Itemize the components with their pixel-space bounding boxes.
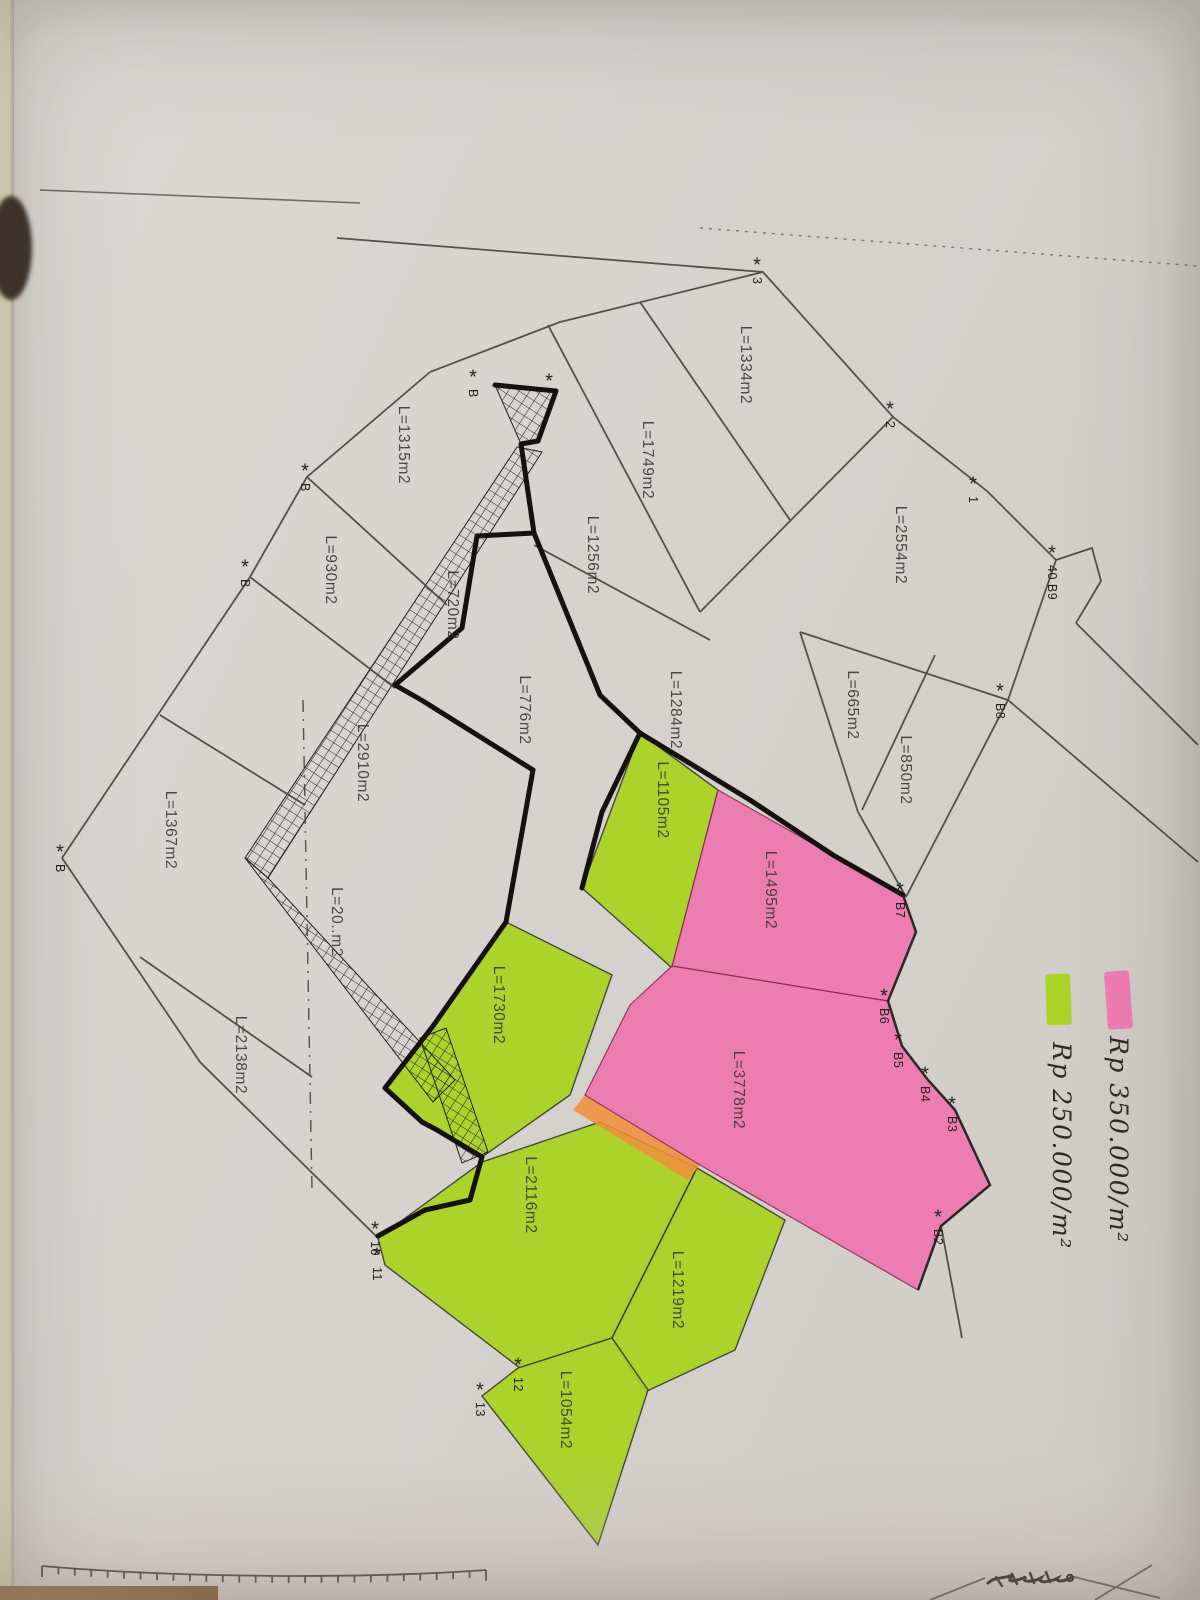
parcel-label: L=850m2 bbox=[896, 735, 914, 804]
parcel-label: L=1054m2 bbox=[556, 1371, 574, 1450]
legend-swatch-green bbox=[1045, 974, 1072, 1026]
survey-point-label: B5 bbox=[891, 1052, 905, 1068]
survey-point-label: B bbox=[53, 864, 67, 873]
parcel-label: L=930m2 bbox=[321, 535, 339, 604]
survey-point-label: B4 bbox=[918, 1086, 932, 1102]
survey-point-label: B3 bbox=[945, 1116, 959, 1132]
parcel-label: L=1749m2 bbox=[638, 421, 656, 500]
survey-star-icon: * bbox=[371, 1220, 379, 1240]
survey-star-icon: * bbox=[896, 881, 904, 901]
parcel-label: L=1105m2 bbox=[653, 761, 671, 838]
survey-point-label: 12 bbox=[511, 1377, 525, 1392]
survey-point-label: B6 bbox=[877, 1008, 891, 1024]
survey-star-icon: * bbox=[894, 1031, 902, 1051]
parcel-label: L=1334m2 bbox=[736, 326, 754, 405]
parcel-map-drawing bbox=[0, 0, 1200, 1600]
survey-star-icon: * bbox=[1048, 544, 1056, 564]
survey-point-label: B bbox=[466, 389, 480, 398]
survey-star-icon: * bbox=[241, 558, 249, 578]
survey-point-label: B bbox=[298, 483, 312, 492]
survey-star-icon: * bbox=[56, 843, 64, 863]
survey-star-icon: * bbox=[934, 1208, 942, 1228]
survey-point-label: B7 bbox=[893, 902, 907, 918]
legend-label-green: Rp 250.000/m² bbox=[1047, 1042, 1076, 1250]
parcel-label: L=720m2 bbox=[443, 570, 461, 639]
survey-star-icon: * bbox=[969, 475, 977, 495]
parcel-label: L=2554m2 bbox=[891, 506, 909, 585]
parcel-label: L=776m2 bbox=[515, 675, 533, 744]
survey-star-icon: * bbox=[373, 1246, 381, 1266]
survey-star-icon: * bbox=[301, 462, 309, 482]
parcel-label: L=1315m2 bbox=[394, 406, 412, 485]
parcel-label: L=1256m2 bbox=[583, 516, 601, 595]
survey-star-icon: * bbox=[514, 1356, 522, 1376]
survey-star-icon: * bbox=[545, 372, 553, 392]
survey-star-icon: * bbox=[996, 682, 1004, 702]
parcel-label: L=2116m2 bbox=[521, 1156, 539, 1233]
parcel-label: L=2910m2 bbox=[353, 724, 371, 803]
illegible-scribble bbox=[988, 1572, 1073, 1586]
parcel-label: L=1284m2 bbox=[666, 671, 684, 750]
wooden-table-edge bbox=[0, 1586, 218, 1600]
parcel-label: L=665m2 bbox=[843, 670, 861, 739]
survey-star-icon: * bbox=[921, 1065, 929, 1085]
survey-point-label: 11 bbox=[370, 1267, 384, 1281]
legend-swatch-pink bbox=[1104, 970, 1133, 1030]
parcel-label: L=1367m2 bbox=[161, 791, 179, 870]
survey-point-label: 1 bbox=[966, 496, 980, 503]
parcel-label: L=1495m2 bbox=[761, 851, 779, 930]
survey-star-icon: * bbox=[886, 400, 894, 420]
survey-point-label: B bbox=[238, 579, 252, 588]
survey-star-icon: * bbox=[753, 256, 761, 276]
survey-star-icon: * bbox=[469, 368, 477, 388]
parcel-label: L=3778m2 bbox=[729, 1051, 747, 1130]
survey-point-label: B2 bbox=[931, 1229, 945, 1245]
parcel-label: L=2138m2 bbox=[231, 1016, 249, 1095]
survey-star-icon: * bbox=[476, 1381, 484, 1401]
survey-point-label: 40.B9 bbox=[1045, 565, 1059, 600]
parcel-label: L=1219m2 bbox=[668, 1251, 686, 1330]
photographed-cadastral-sketch: L=1334m2L=1749m2L=2554m2L=1256m2L=1315m2… bbox=[0, 0, 1200, 1600]
parcel-label: L=1730m2 bbox=[489, 966, 507, 1045]
survey-point-label: 3 bbox=[750, 277, 764, 284]
survey-point-label: 13 bbox=[473, 1402, 487, 1417]
survey-star-icon: * bbox=[880, 987, 888, 1007]
parcel-label: L=20..m2 bbox=[327, 887, 345, 957]
survey-point-label: 2 bbox=[883, 421, 897, 428]
survey-star-icon: * bbox=[948, 1095, 956, 1115]
survey-point-label: B8 bbox=[993, 703, 1007, 719]
legend-label-pink: Rp 350.000/m² bbox=[1104, 1036, 1133, 1244]
scale-bar bbox=[42, 1566, 486, 1583]
